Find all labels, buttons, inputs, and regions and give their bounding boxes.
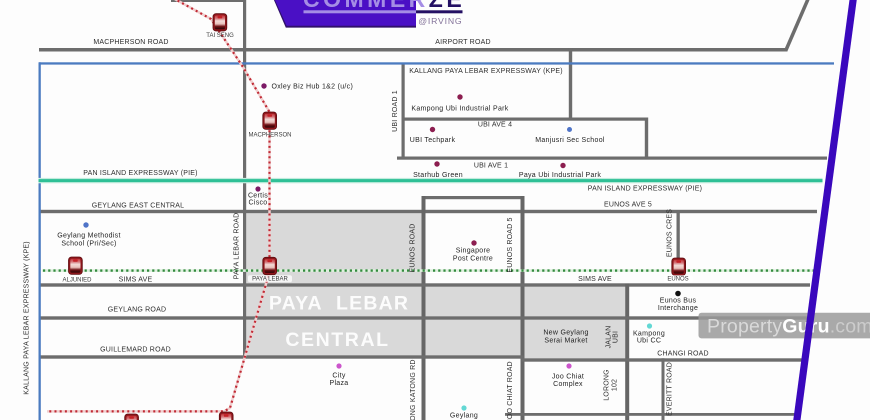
svg-text:PAN ISLAND EXPRESSWAY (PIE): PAN ISLAND EXPRESSWAY (PIE): [588, 186, 702, 193]
svg-text:GEYLANG ROAD: GEYLANG ROAD: [108, 307, 166, 314]
svg-text:@IRVING: @IRVING: [418, 16, 462, 26]
svg-text:Manjusri Sec School: Manjusri Sec School: [535, 137, 605, 144]
svg-text:Complex: Complex: [553, 381, 583, 388]
svg-text:Interchange: Interchange: [658, 305, 698, 312]
svg-text:UBI AVE 1: UBI AVE 1: [474, 163, 508, 170]
svg-text:Paya Ubi Industrial Park: Paya Ubi Industrial Park: [519, 172, 601, 179]
svg-text:GEYLANG EAST CENTRAL: GEYLANG EAST CENTRAL: [92, 203, 185, 210]
svg-text:Ubi CC: Ubi CC: [637, 338, 661, 345]
svg-text:EUNOS: EUNOS: [667, 277, 688, 283]
svg-text:UBI ROAD 1: UBI ROAD 1: [392, 90, 399, 132]
svg-text:EUNOS ROAD: EUNOS ROAD: [410, 223, 417, 272]
svg-text:LORONG: LORONG: [604, 369, 611, 401]
svg-text:UBI Techpark: UBI Techpark: [410, 137, 456, 144]
svg-text:UBI AVE 4: UBI AVE 4: [478, 122, 512, 129]
svg-text:JOO CHIAT ROAD: JOO CHIAT ROAD: [507, 361, 514, 420]
svg-text:CENTRAL: CENTRAL: [285, 329, 389, 351]
svg-text:MACPHERSON ROAD: MACPHERSON ROAD: [93, 39, 168, 46]
svg-text:GUILLEMARD ROAD: GUILLEMARD ROAD: [100, 347, 171, 354]
svg-text:KALLANG PAYA LEBAR EXPRESSWAY: KALLANG PAYA LEBAR EXPRESSWAY (KPE): [24, 241, 31, 395]
svg-text:Geylang Methodist: Geylang Methodist: [57, 233, 120, 240]
svg-text:EUNOS ROAD 5: EUNOS ROAD 5: [507, 217, 514, 272]
svg-text:SIMS AVE: SIMS AVE: [119, 277, 153, 284]
svg-text:School (Pri/Sec): School (Pri/Sec): [61, 241, 116, 248]
svg-text:PropertyGuru.com.s: PropertyGuru.com.s: [707, 316, 870, 338]
svg-text:AIRPORT ROAD: AIRPORT ROAD: [435, 39, 490, 46]
svg-text:Starhub Green: Starhub Green: [413, 172, 463, 179]
svg-text:ALJUNIED: ALJUNIED: [62, 278, 92, 284]
svg-text:KALLANG PAYA LEBAR EXPRESSWAY: KALLANG PAYA LEBAR EXPRESSWAY (KPE): [409, 68, 563, 75]
svg-text:Eunos Bus: Eunos Bus: [660, 298, 697, 305]
svg-text:Cisco: Cisco: [248, 200, 267, 207]
svg-text:EUNOS CRES: EUNOS CRES: [667, 209, 674, 257]
svg-text:PAYA LEBAR: PAYA LEBAR: [269, 293, 409, 315]
svg-text:Plaza: Plaza: [329, 380, 348, 387]
svg-text:102: 102: [612, 379, 619, 391]
svg-text:CHANGI ROAD: CHANGI ROAD: [657, 351, 709, 358]
svg-text:UBI: UBI: [613, 331, 620, 343]
svg-text:Serai Market: Serai Market: [544, 338, 587, 345]
svg-text:Singapore: Singapore: [456, 248, 491, 255]
svg-text:Geylang: Geylang: [450, 413, 478, 420]
svg-text:Certis: Certis: [248, 193, 268, 200]
svg-text:City: City: [332, 373, 345, 380]
svg-text:COMMERZE: COMMERZE: [303, 0, 465, 12]
svg-text:TAI SENG: TAI SENG: [206, 33, 234, 39]
svg-text:New Geylang: New Geylang: [543, 330, 588, 337]
svg-text:EVERITT ROAD: EVERITT ROAD: [667, 362, 674, 416]
svg-text:JALAN: JALAN: [606, 326, 613, 349]
svg-text:MACPHERSON: MACPHERSON: [248, 133, 291, 139]
svg-text:Post Centre: Post Centre: [453, 256, 493, 263]
svg-text:Oxley Biz Hub 1&2 (u/c): Oxley Biz Hub 1&2 (u/c): [272, 83, 354, 90]
svg-text:Kampong: Kampong: [633, 331, 665, 338]
svg-text:PAYA LEBAR ROAD: PAYA LEBAR ROAD: [234, 213, 241, 280]
svg-text:TANJONG KATONG RD: TANJONG KATONG RD: [410, 359, 417, 420]
svg-text:PAYA LEBAR: PAYA LEBAR: [252, 277, 288, 283]
svg-text:SIMS AVE: SIMS AVE: [578, 276, 612, 283]
svg-text:Kampong Ubi Industrial Park: Kampong Ubi Industrial Park: [411, 106, 508, 113]
svg-text:EUNOS AVE 5: EUNOS AVE 5: [604, 202, 652, 209]
svg-text:PAN ISLAND EXPRESSWAY (PIE): PAN ISLAND EXPRESSWAY (PIE): [83, 170, 197, 177]
svg-text:Joo Chiat: Joo Chiat: [552, 374, 584, 381]
